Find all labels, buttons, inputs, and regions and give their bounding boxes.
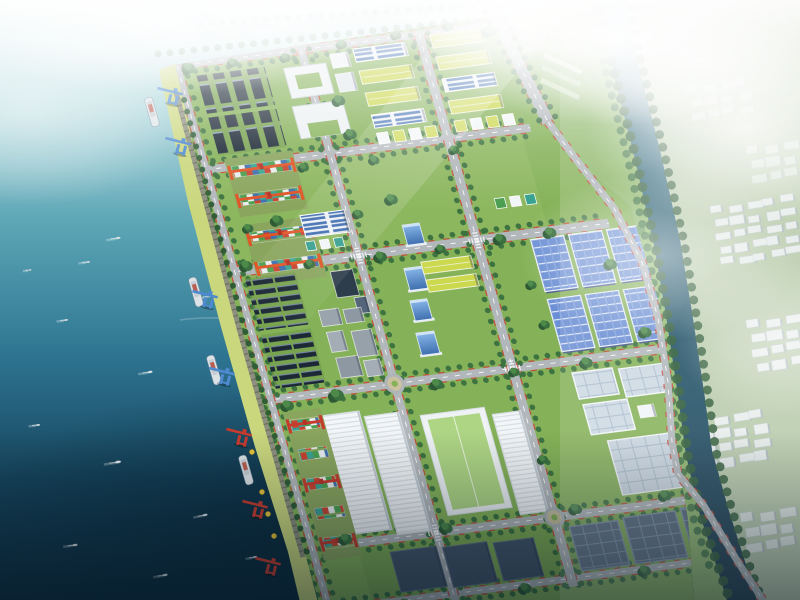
boat-hull — [86, 261, 90, 263]
aerial-render: Aerial master-plan rendering of a rivers… — [0, 0, 800, 600]
park-block-gray-building — [318, 308, 342, 327]
aerial-render-stage: Aerial master-plan rendering of a rivers… — [0, 0, 800, 600]
bottom-vignette — [0, 430, 800, 600]
boat-hull — [28, 269, 31, 270]
boat-hull — [64, 319, 68, 321]
boat-hull — [36, 424, 40, 426]
park-block-gray-building — [343, 307, 365, 323]
